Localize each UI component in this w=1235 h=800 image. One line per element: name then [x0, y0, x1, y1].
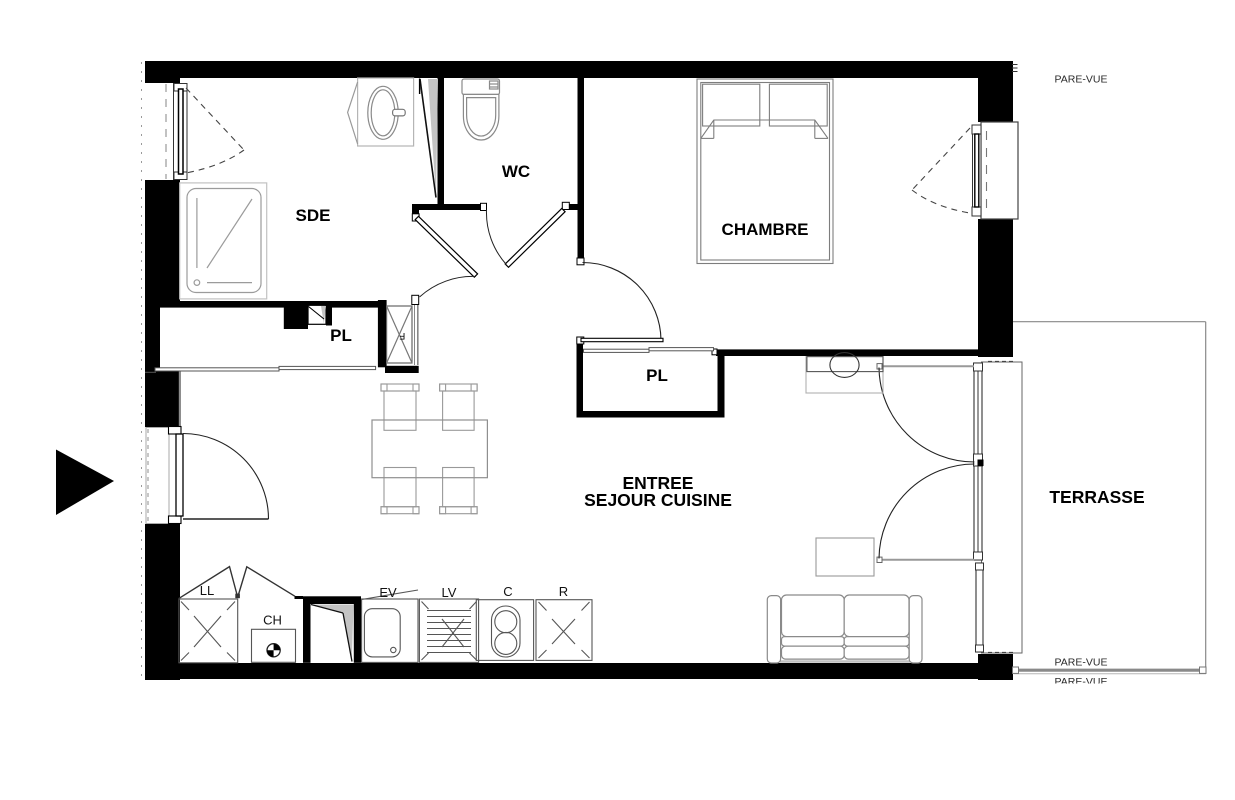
- svg-text:PARE-VUE: PARE-VUE: [1055, 74, 1108, 86]
- svg-text:LL: LL: [200, 583, 214, 598]
- svg-text:PL: PL: [330, 326, 352, 345]
- svg-text:WC: WC: [502, 162, 530, 181]
- svg-text:SDE: SDE: [296, 206, 331, 225]
- svg-text:TERRASSE: TERRASSE: [1049, 487, 1144, 507]
- svg-text:R: R: [559, 584, 568, 599]
- svg-text:F: F: [399, 330, 405, 341]
- svg-text:PARE-VUE: PARE-VUE: [1055, 657, 1108, 669]
- svg-text:C: C: [503, 584, 512, 599]
- svg-text:CH: CH: [263, 613, 282, 628]
- svg-text:SEJOUR CUISINE: SEJOUR CUISINE: [584, 490, 732, 510]
- svg-text:CHAMBRE: CHAMBRE: [722, 220, 809, 239]
- svg-text:PL: PL: [646, 366, 668, 385]
- svg-text:LV: LV: [442, 585, 457, 600]
- svg-text:EV: EV: [379, 585, 397, 600]
